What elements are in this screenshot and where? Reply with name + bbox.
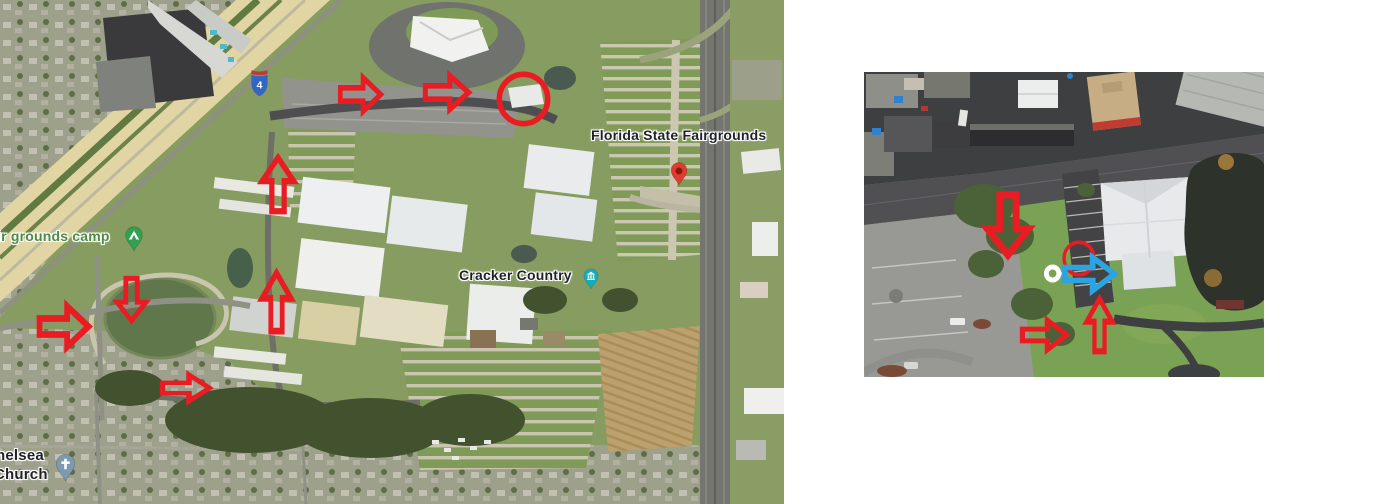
campground-label: ir grounds camp <box>0 229 110 244</box>
route-arrow-left-edge <box>38 302 90 351</box>
detail-arrow-up <box>1084 297 1115 353</box>
campground-pin[interactable] <box>124 226 144 253</box>
route-arrow-lake-south <box>161 372 211 404</box>
overview-map-image: Florida State FairgroundsCracker Country… <box>0 0 784 504</box>
church-label-line2: Church <box>0 467 48 483</box>
route-arrow-up-2 <box>259 271 294 333</box>
fairgrounds-label: Florida State Fairgrounds <box>591 128 766 143</box>
route-arrow-top-2 <box>424 72 470 113</box>
church-pin[interactable] <box>55 452 76 485</box>
detail-arrow-blue <box>1063 254 1116 294</box>
interstate-4-shield-number: 4 <box>257 81 263 92</box>
route-arrow-top-1 <box>339 74 382 115</box>
interstate-4-shield: 4 <box>250 68 269 98</box>
route-arrow-down <box>114 277 149 322</box>
overview-annotations-layer: Florida State FairgroundsCracker Country… <box>0 0 784 504</box>
route-arrow-up-1 <box>259 156 297 213</box>
destination-circle <box>496 71 551 127</box>
fairgrounds-pin[interactable] <box>670 161 688 188</box>
page-canvas: Florida State FairgroundsCracker Country… <box>0 0 1380 504</box>
detail-arrow-down <box>983 193 1033 257</box>
detail-annotations-layer <box>864 72 1264 377</box>
cracker-country-label: Cracker Country <box>459 268 572 283</box>
cracker-country-pin[interactable] <box>583 266 599 293</box>
detail-map-image <box>864 72 1264 377</box>
detail-arrow-right <box>1021 317 1068 353</box>
church-label-line1: helsea <box>0 448 44 464</box>
